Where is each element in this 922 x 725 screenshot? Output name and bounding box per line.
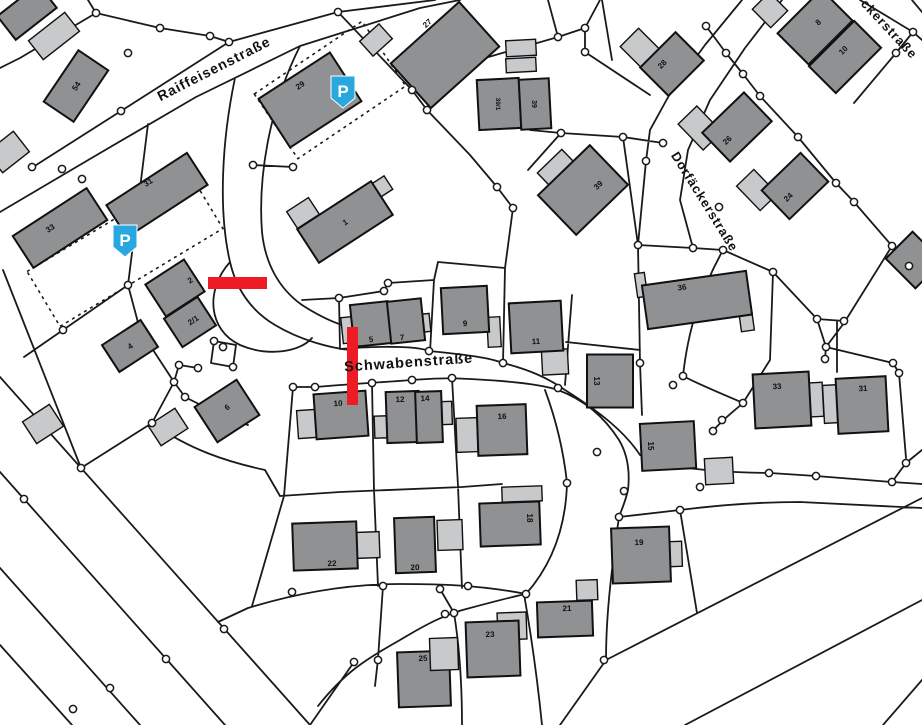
survey-point: [59, 326, 66, 333]
survey-point: [659, 139, 666, 146]
survey-point: [702, 22, 709, 29]
building-number-39/1: 39/1: [494, 98, 501, 111]
survey-point: [408, 86, 415, 93]
survey-point: [210, 337, 217, 344]
survey-point: [888, 242, 895, 249]
blocked-segment-horizontal: [208, 277, 267, 289]
survey-point: [850, 198, 857, 205]
survey-point: [679, 372, 686, 379]
survey-point: [220, 625, 227, 632]
survey-point: [522, 590, 529, 597]
parking-icon: P: [113, 225, 137, 257]
building-19: [611, 527, 671, 584]
building-26: [702, 92, 772, 161]
survey-point: [350, 658, 357, 665]
building-number-20: 20: [410, 563, 420, 572]
survey-point: [821, 355, 828, 362]
survey-point: [448, 374, 455, 381]
survey-point: [334, 8, 341, 15]
survey-point: [162, 655, 169, 662]
survey-point: [888, 478, 895, 485]
survey-point: [636, 359, 643, 366]
survey-point: [335, 294, 342, 301]
survey-point: [464, 582, 471, 589]
survey-point: [181, 393, 188, 400]
building-number-15: 15: [646, 442, 655, 451]
building-number-10: 10: [333, 399, 343, 409]
survey-point: [600, 656, 607, 663]
building-22: [292, 521, 358, 570]
survey-point: [563, 479, 570, 486]
survey-point: [219, 343, 226, 350]
map-viewport: 54313322/1462927139/13939288102624579111…: [0, 0, 922, 725]
building: [456, 418, 478, 453]
survey-point: [170, 378, 177, 385]
survey-point: [441, 610, 448, 617]
building-7: [387, 298, 425, 343]
survey-point: [902, 459, 909, 466]
survey-point: [895, 369, 902, 376]
survey-point: [689, 244, 696, 251]
survey-point: [249, 161, 256, 168]
building: [752, 0, 787, 28]
building-number-23: 23: [485, 630, 495, 639]
survey-point: [78, 175, 85, 182]
survey-point: [840, 317, 847, 324]
survey-point: [642, 157, 649, 164]
building-18: [479, 501, 540, 546]
survey-point: [813, 315, 820, 322]
survey-point: [832, 179, 839, 186]
building-number-18: 18: [525, 514, 534, 523]
survey-point: [889, 359, 896, 366]
building-number-12: 12: [395, 395, 405, 404]
building-number-21: 21: [562, 604, 572, 613]
building-36: [642, 271, 752, 329]
survey-point: [20, 495, 27, 502]
building-number-39: 39: [530, 100, 537, 108]
survey-point: [194, 364, 201, 371]
survey-point: [148, 419, 155, 426]
survey-point: [676, 506, 683, 513]
survey-point: [739, 399, 746, 406]
building: [506, 39, 537, 57]
street-label-Schwabenstraße: Schwabenstraße: [344, 351, 474, 376]
survey-point: [374, 656, 381, 663]
survey-point: [384, 279, 391, 286]
building: [506, 57, 537, 73]
survey-point: [124, 49, 131, 56]
survey-point: [175, 361, 182, 368]
survey-point: [634, 241, 641, 248]
survey-point: [739, 70, 746, 77]
building-number-31: 31: [858, 384, 868, 393]
survey-point: [380, 287, 387, 294]
building-31: [106, 153, 207, 237]
building-33: [753, 372, 812, 429]
survey-point: [709, 427, 716, 434]
building: [502, 486, 542, 502]
building: [356, 532, 380, 559]
street-label-Dorfäckerstraße: Dorfäckerstraße: [668, 149, 742, 254]
survey-point: [722, 49, 729, 56]
map-canvas[interactable]: 54313322/1462927139/13939288102624579111…: [0, 0, 922, 725]
building-number-33: 33: [772, 382, 782, 391]
survey-point: [58, 165, 65, 172]
survey-point: [229, 363, 236, 370]
building: [429, 638, 458, 671]
survey-point: [892, 49, 899, 56]
building: [0, 131, 29, 172]
survey-point: [615, 513, 622, 520]
building: [360, 24, 393, 56]
survey-point: [499, 359, 506, 366]
survey-point: [554, 33, 561, 40]
survey-point: [718, 416, 725, 423]
survey-point: [289, 163, 296, 170]
building: [704, 457, 733, 484]
building-number-36: 36: [677, 282, 688, 292]
survey-point: [117, 107, 124, 114]
survey-point: [379, 582, 386, 589]
survey-point: [593, 448, 600, 455]
survey-point: [756, 92, 763, 99]
survey-point: [581, 48, 588, 55]
survey-point: [493, 183, 500, 190]
survey-point: [28, 163, 35, 170]
parking-icon-letter: P: [119, 231, 130, 250]
building-33: [13, 188, 107, 268]
survey-point: [509, 204, 516, 211]
survey-point: [289, 383, 296, 390]
building-number-16: 16: [497, 412, 507, 421]
survey-point: [581, 24, 588, 31]
survey-point: [206, 32, 213, 39]
survey-point: [812, 472, 819, 479]
building-number-19: 19: [634, 538, 644, 547]
survey-point: [423, 106, 430, 113]
parking-icon-letter: P: [337, 82, 348, 101]
survey-point: [620, 487, 627, 494]
building: [437, 520, 463, 551]
survey-point: [794, 133, 801, 140]
building-number-14: 14: [420, 394, 430, 403]
survey-point: [905, 262, 912, 269]
survey-point: [225, 38, 232, 45]
survey-point: [368, 379, 375, 386]
survey-point: [77, 464, 84, 471]
survey-point: [554, 384, 561, 391]
survey-point: [450, 609, 457, 616]
survey-point: [124, 281, 131, 288]
building-number-25: 25: [418, 654, 428, 663]
building: [148, 408, 188, 446]
building: [886, 232, 922, 289]
survey-point: [156, 24, 163, 31]
survey-point: [696, 483, 703, 490]
survey-point: [106, 684, 113, 691]
survey-point: [92, 9, 99, 16]
survey-point: [408, 376, 415, 383]
survey-point: [822, 343, 829, 350]
survey-point: [288, 588, 295, 595]
survey-point: [765, 469, 772, 476]
survey-point: [619, 133, 626, 140]
building: [576, 580, 598, 601]
survey-point: [311, 383, 318, 390]
survey-point: [69, 705, 76, 712]
survey-point: [557, 129, 564, 136]
building-number-11: 11: [532, 337, 541, 346]
building-number-22: 22: [327, 559, 337, 568]
building-number-13: 13: [592, 377, 601, 386]
survey-point: [909, 28, 916, 35]
survey-point: [769, 268, 776, 275]
building: [541, 349, 568, 375]
survey-point: [669, 381, 676, 388]
survey-point: [436, 585, 443, 592]
